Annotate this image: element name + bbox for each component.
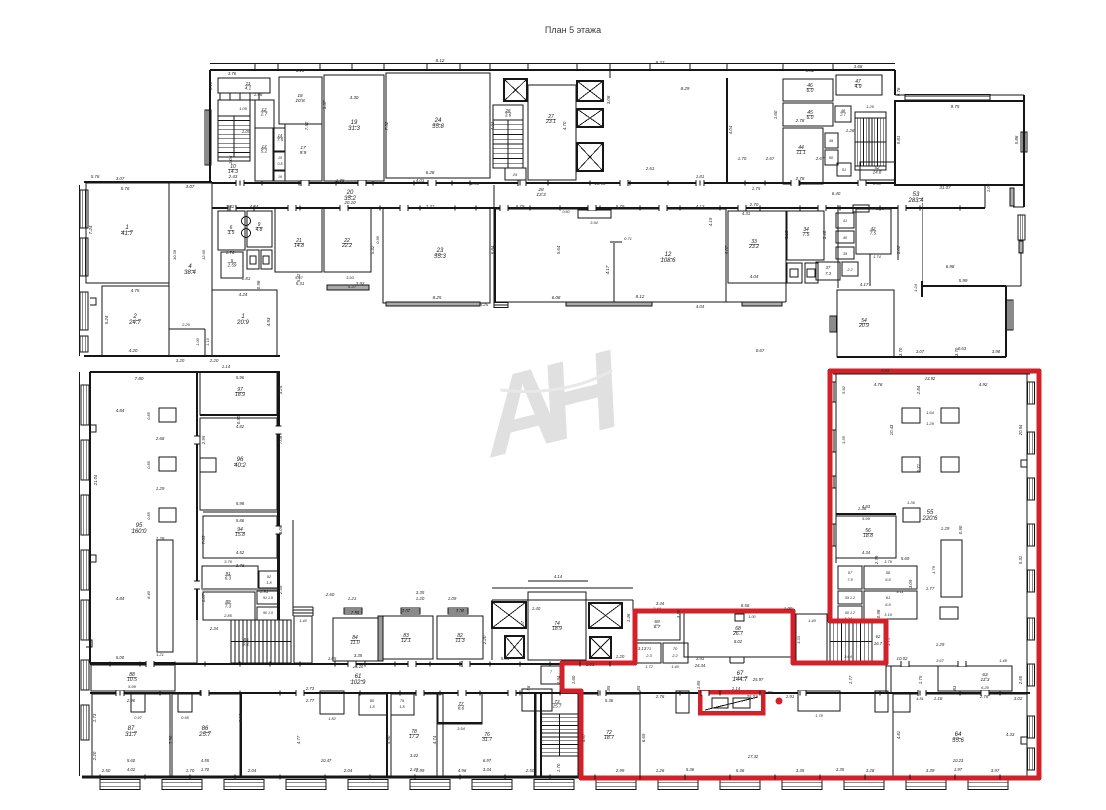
svg-text:1.10: 1.10: [208, 81, 213, 90]
svg-text:3.97: 3.97: [991, 768, 1000, 773]
svg-text:8.12: 8.12: [636, 294, 645, 299]
svg-text:10.98: 10.98: [595, 181, 607, 186]
svg-text:1.77: 1.77: [926, 586, 935, 591]
svg-text:2.20: 2.20: [209, 358, 219, 363]
svg-text:3.33: 3.33: [796, 635, 801, 644]
svg-text:9.9: 9.9: [300, 150, 307, 156]
svg-text:8.12: 8.12: [436, 58, 445, 63]
svg-text:8.40: 8.40: [146, 590, 151, 599]
svg-text:1.07: 1.07: [201, 593, 206, 602]
svg-text:0.90: 0.90: [236, 415, 241, 424]
svg-text:60 1.2: 60 1.2: [845, 611, 855, 615]
svg-text:2.50: 2.50: [525, 768, 535, 773]
svg-text:18.9: 18.9: [552, 626, 562, 632]
svg-text:1.76: 1.76: [226, 250, 235, 255]
svg-text:108.6: 108.6: [660, 258, 676, 264]
svg-text:1.26: 1.26: [656, 768, 665, 773]
svg-text:1.98: 1.98: [254, 92, 263, 97]
svg-text:4.04: 4.04: [696, 304, 705, 309]
svg-text:2.32: 2.32: [225, 204, 235, 209]
svg-text:5.36: 5.36: [736, 768, 745, 773]
svg-text:1.60: 1.60: [571, 675, 576, 684]
svg-text:0.99: 0.99: [376, 235, 380, 243]
svg-text:2.76: 2.76: [655, 694, 665, 699]
svg-text:3.39: 3.39: [926, 768, 935, 773]
svg-text:4.57: 4.57: [520, 620, 525, 629]
svg-text:0.98: 0.98: [876, 609, 881, 618]
svg-text:2.50: 2.50: [101, 768, 111, 773]
svg-text:25.97: 25.97: [752, 677, 764, 682]
svg-text:5.98: 5.98: [236, 501, 245, 506]
svg-text:1.24: 1.24: [913, 283, 918, 292]
svg-text:10.23: 10.23: [953, 758, 964, 763]
svg-text:4.91: 4.91: [490, 121, 495, 130]
svg-text:1.05: 1.05: [242, 129, 251, 134]
svg-text:0.8: 0.8: [278, 162, 283, 166]
svg-text:8.56: 8.56: [741, 603, 750, 608]
svg-text:6.08: 6.08: [552, 295, 561, 300]
svg-text:2.78: 2.78: [795, 118, 805, 123]
svg-text:3.13: 3.13: [638, 646, 647, 651]
svg-text:71: 71: [647, 646, 651, 651]
svg-text:1.79: 1.79: [931, 565, 936, 574]
svg-text:24.7: 24.7: [128, 320, 141, 326]
svg-text:1.29: 1.29: [156, 486, 165, 491]
svg-text:57: 57: [848, 570, 853, 575]
svg-text:3.76: 3.76: [224, 559, 233, 564]
svg-text:3.28: 3.28: [866, 768, 875, 773]
svg-text:3.35: 3.35: [841, 435, 846, 444]
svg-text:1.21: 1.21: [348, 596, 357, 601]
svg-text:13.3: 13.3: [536, 192, 546, 198]
svg-text:9.75: 9.75: [951, 104, 960, 109]
svg-text:7.5: 7.5: [277, 137, 283, 142]
svg-text:1.14: 1.14: [222, 364, 231, 369]
svg-text:1.26: 1.26: [846, 128, 855, 133]
svg-text:9.78: 9.78: [896, 87, 901, 96]
svg-text:1.65: 1.65: [328, 656, 337, 661]
svg-text:3.64: 3.64: [844, 654, 853, 659]
svg-text:5.90: 5.90: [386, 735, 391, 744]
svg-text:61: 61: [886, 595, 890, 600]
svg-text:18.8: 18.8: [863, 533, 873, 539]
svg-text:4.77: 4.77: [296, 735, 301, 744]
svg-text:5.99: 5.99: [862, 516, 871, 521]
svg-text:41: 41: [843, 219, 847, 223]
svg-text:4.17: 4.17: [860, 282, 869, 287]
svg-text:91 1.5: 91 1.5: [263, 596, 273, 600]
svg-text:1.05: 1.05: [239, 106, 248, 111]
svg-text:20.10: 20.10: [343, 200, 356, 205]
svg-text:5.2: 5.2: [261, 149, 268, 154]
svg-text:4.14: 4.14: [554, 574, 563, 579]
svg-text:4.11: 4.11: [896, 590, 903, 594]
svg-text:4.31: 4.31: [742, 211, 751, 216]
svg-text:6.84: 6.84: [490, 245, 495, 254]
svg-text:1.70: 1.70: [201, 767, 210, 772]
svg-text:5.36: 5.36: [605, 698, 614, 703]
svg-text:3.02: 3.02: [1014, 696, 1023, 701]
svg-text:1.21: 1.21: [156, 652, 164, 657]
svg-text:4.70: 4.70: [562, 121, 567, 130]
svg-text:2.43: 2.43: [228, 174, 238, 179]
svg-text:3.09: 3.09: [908, 579, 913, 588]
svg-text:2.04: 2.04: [343, 768, 353, 773]
svg-text:1.29: 1.29: [926, 421, 935, 426]
svg-text:4.1: 4.1: [245, 86, 252, 91]
svg-text:26.7: 26.7: [732, 631, 743, 637]
svg-text:1.85: 1.85: [696, 680, 701, 689]
svg-text:1.48: 1.48: [999, 658, 1008, 663]
svg-text:1.72: 1.72: [645, 665, 653, 669]
svg-text:1.94: 1.94: [556, 675, 561, 684]
svg-text:2.95: 2.95: [201, 435, 206, 445]
svg-text:3.82: 3.82: [806, 68, 815, 73]
svg-text:5.64: 5.64: [556, 245, 561, 254]
svg-text:4.02: 4.02: [127, 767, 136, 772]
svg-text:12.60: 12.60: [201, 249, 206, 260]
svg-text:5.86: 5.86: [1014, 135, 1019, 144]
svg-text:3.76: 3.76: [236, 563, 245, 568]
svg-text:31.3: 31.3: [348, 126, 360, 132]
svg-text:2.65: 2.65: [1018, 675, 1023, 685]
svg-text:0.60: 0.60: [563, 210, 570, 214]
svg-text:4.81: 4.81: [916, 697, 923, 701]
svg-text:1.81: 1.81: [242, 276, 251, 281]
svg-text:12.1: 12.1: [401, 638, 411, 644]
svg-text:3.98: 3.98: [992, 349, 1001, 354]
svg-text:3.07: 3.07: [186, 184, 195, 189]
svg-text:3.19: 3.19: [884, 613, 892, 617]
svg-text:6.0: 6.0: [807, 88, 814, 94]
svg-text:2.76: 2.76: [979, 694, 989, 699]
svg-text:5.69: 5.69: [901, 556, 910, 561]
svg-text:22.2: 22.2: [341, 243, 352, 249]
svg-text:3.07: 3.07: [916, 349, 925, 354]
svg-text:10.39: 10.39: [172, 249, 177, 260]
svg-text:10.02: 10.02: [897, 656, 909, 661]
svg-text:1.00: 1.00: [784, 606, 793, 611]
svg-text:1.00: 1.00: [196, 337, 200, 345]
svg-text:5.42: 5.42: [370, 245, 375, 254]
svg-text:16.7: 16.7: [874, 641, 883, 646]
svg-text:1.40: 1.40: [808, 618, 817, 623]
svg-text:40.2: 40.2: [234, 463, 246, 469]
svg-text:1.85: 1.85: [606, 685, 611, 694]
svg-text:5.24: 5.24: [104, 315, 109, 324]
svg-text:3.34: 3.34: [483, 767, 492, 772]
svg-text:5.92: 5.92: [841, 385, 846, 394]
svg-text:5.00: 5.00: [116, 655, 125, 660]
svg-text:23.2: 23.2: [748, 244, 759, 250]
svg-text:31.7: 31.7: [125, 732, 137, 738]
svg-text:8.6: 8.6: [458, 706, 465, 711]
svg-text:3.02: 3.02: [896, 245, 901, 254]
svg-text:55.3: 55.3: [434, 254, 446, 260]
svg-text:2.61: 2.61: [645, 166, 655, 171]
svg-text:4.24: 4.24: [250, 204, 259, 209]
svg-text:4.84: 4.84: [116, 408, 125, 413]
svg-text:6.69: 6.69: [641, 733, 646, 742]
svg-text:3.6: 3.6: [505, 113, 512, 118]
svg-text:8.02: 8.02: [734, 639, 743, 644]
svg-text:1.75: 1.75: [752, 186, 761, 191]
svg-text:1.18: 1.18: [934, 696, 943, 701]
svg-text:1.8: 1.8: [369, 705, 375, 709]
svg-text:15.7: 15.7: [553, 704, 562, 709]
svg-text:4.67: 4.67: [581, 733, 586, 742]
svg-text:4.19: 4.19: [708, 217, 713, 226]
svg-text:31.07: 31.07: [939, 185, 951, 190]
svg-text:2.99: 2.99: [615, 768, 625, 773]
svg-text:3.08: 3.08: [606, 95, 611, 104]
svg-text:3.79: 3.79: [884, 559, 893, 564]
svg-text:7.3: 7.3: [225, 604, 232, 609]
svg-text:2.79: 2.79: [874, 555, 879, 565]
svg-text:3.93: 3.93: [346, 275, 355, 280]
svg-text:3.44: 3.44: [656, 601, 665, 606]
svg-text:4.17: 4.17: [605, 265, 610, 274]
svg-text:1.20: 1.20: [616, 654, 625, 659]
svg-text:18.7: 18.7: [604, 735, 614, 741]
svg-text:5.31: 5.31: [1018, 556, 1023, 564]
svg-text:1.36: 1.36: [858, 506, 867, 511]
svg-text:4.13: 4.13: [696, 204, 705, 209]
svg-text:4.04: 4.04: [728, 125, 733, 134]
svg-text:5.96: 5.96: [236, 375, 245, 380]
svg-text:5.90: 5.90: [168, 735, 173, 744]
svg-text:1.70: 1.70: [738, 156, 747, 161]
svg-text:5.60: 5.60: [127, 758, 136, 763]
svg-text:14.8: 14.8: [294, 243, 304, 249]
svg-text:План 5 этажа: План 5 этажа: [545, 25, 601, 35]
svg-text:4.34: 4.34: [862, 550, 871, 555]
svg-text:4.52: 4.52: [236, 550, 245, 555]
svg-text:3.37: 3.37: [322, 100, 327, 109]
svg-text:0.85: 0.85: [147, 511, 151, 519]
svg-text:51: 51: [842, 168, 846, 172]
svg-text:0.85: 0.85: [147, 460, 151, 468]
svg-text:2.20: 2.20: [181, 322, 191, 327]
svg-text:6.20: 6.20: [981, 685, 990, 690]
svg-text:3.16: 3.16: [238, 713, 243, 722]
svg-text:6.79: 6.79: [516, 204, 525, 209]
svg-text:3.91: 3.91: [696, 656, 705, 661]
svg-text:4.33: 4.33: [1006, 732, 1015, 737]
svg-text:1.40: 1.40: [532, 606, 541, 611]
svg-text:0.63: 0.63: [958, 346, 967, 351]
svg-text:6.40: 6.40: [832, 191, 841, 196]
svg-text:10.47: 10.47: [321, 758, 332, 763]
svg-text:3.50: 3.50: [676, 609, 681, 618]
svg-text:7.65: 7.65: [201, 535, 206, 544]
svg-text:6.28: 6.28: [426, 170, 435, 175]
svg-text:2.3: 2.3: [645, 653, 652, 658]
svg-text:2.2: 2.2: [671, 653, 678, 658]
svg-text:6.7: 6.7: [654, 624, 661, 630]
svg-text:2.68: 2.68: [155, 436, 165, 441]
svg-text:3.35: 3.35: [354, 653, 363, 658]
svg-text:13.92: 13.92: [925, 376, 936, 381]
svg-text:11.0: 11.0: [350, 640, 360, 646]
svg-text:4.20: 4.20: [129, 348, 138, 353]
svg-text:4.92: 4.92: [979, 382, 988, 387]
svg-text:1.08: 1.08: [986, 183, 991, 192]
svg-text:1.20: 1.20: [416, 596, 425, 601]
svg-text:8.25: 8.25: [480, 302, 489, 307]
svg-text:6.97: 6.97: [483, 758, 492, 763]
svg-text:1.81: 1.81: [696, 174, 705, 179]
svg-text:1.10: 1.10: [206, 337, 210, 345]
svg-text:1.00: 1.00: [749, 615, 756, 619]
svg-text:5.76: 5.76: [91, 174, 100, 179]
svg-text:3.24: 3.24: [278, 385, 283, 394]
svg-text:6.6: 6.6: [885, 602, 891, 607]
svg-text:4.76: 4.76: [874, 382, 883, 387]
svg-text:3.06: 3.06: [278, 525, 283, 534]
svg-text:1.97: 1.97: [954, 767, 963, 772]
svg-text:17.32: 17.32: [748, 754, 759, 759]
svg-text:0.90: 0.90: [958, 525, 963, 534]
svg-text:2.59: 2.59: [227, 263, 237, 268]
svg-text:4.93: 4.93: [266, 317, 271, 326]
svg-text:3.07: 3.07: [116, 176, 125, 181]
svg-text:4.83: 4.83: [881, 368, 890, 373]
svg-text:4.74: 4.74: [432, 735, 437, 744]
svg-text:3.67: 3.67: [936, 658, 945, 663]
svg-text:2.99: 2.99: [415, 768, 425, 773]
svg-text:6.87: 6.87: [724, 245, 729, 254]
svg-text:25.7: 25.7: [198, 732, 211, 738]
svg-text:2.56: 2.56: [526, 685, 531, 695]
svg-text:5.76: 5.76: [121, 186, 130, 191]
svg-text:5.99: 5.99: [128, 684, 137, 689]
svg-text:3.35: 3.35: [836, 767, 845, 772]
svg-text:3.70: 3.70: [954, 347, 959, 356]
svg-text:23.1: 23.1: [545, 119, 556, 125]
svg-text:2.58: 2.58: [872, 181, 882, 186]
svg-text:2.7: 2.7: [839, 112, 846, 117]
svg-text:2.7: 2.7: [260, 112, 268, 117]
svg-text:1.38: 1.38: [336, 178, 345, 183]
svg-text:14.8: 14.8: [873, 170, 882, 175]
svg-text:5.81: 5.81: [896, 135, 901, 144]
svg-text:24.34: 24.34: [694, 663, 706, 668]
svg-text:1.74: 1.74: [873, 255, 880, 259]
svg-text:1.8: 1.8: [399, 705, 405, 709]
svg-text:0.67: 0.67: [756, 348, 765, 353]
svg-text:5.79: 5.79: [616, 204, 625, 209]
svg-text:1.64: 1.64: [926, 410, 935, 415]
svg-text:4.55: 4.55: [201, 758, 210, 763]
svg-text:6.0: 6.0: [807, 115, 814, 121]
svg-text:1.40: 1.40: [671, 665, 679, 669]
svg-text:3.48: 3.48: [822, 230, 827, 239]
svg-text:6.3: 6.3: [225, 576, 232, 581]
svg-text:5.36: 5.36: [686, 767, 695, 772]
svg-text:5.31: 5.31: [296, 281, 305, 286]
svg-text:3.20: 3.20: [176, 358, 185, 363]
svg-text:2.20: 2.20: [92, 751, 97, 761]
svg-text:2.60: 2.60: [325, 592, 335, 597]
svg-text:0.65: 0.65: [181, 716, 189, 720]
svg-text:20.94: 20.94: [1018, 424, 1023, 436]
svg-text:4.30: 4.30: [350, 95, 359, 100]
svg-text:25.03: 25.03: [746, 694, 759, 699]
svg-text:1.8: 1.8: [266, 581, 272, 585]
svg-text:0.97: 0.97: [134, 716, 142, 720]
svg-text:7.52: 7.52: [384, 121, 389, 130]
svg-text:41.7: 41.7: [121, 231, 133, 237]
svg-text:1.78: 1.78: [815, 714, 823, 718]
svg-text:4.9: 4.9: [855, 84, 862, 90]
svg-text:1.03: 1.03: [586, 662, 595, 667]
svg-text:1.70: 1.70: [556, 763, 561, 772]
svg-text:2.84: 2.84: [916, 385, 921, 395]
svg-text:1.28: 1.28: [156, 536, 165, 541]
svg-text:5.99: 5.99: [959, 278, 968, 283]
svg-text:1.29: 1.29: [941, 526, 950, 531]
svg-text:8.25: 8.25: [433, 295, 442, 300]
svg-text:2.34: 2.34: [209, 626, 219, 631]
svg-text:7.5: 7.5: [847, 577, 853, 582]
svg-text:37: 37: [826, 265, 831, 270]
svg-text:7.08: 7.08: [278, 435, 283, 444]
svg-text:3.68: 3.68: [854, 64, 863, 69]
svg-text:90 1.5: 90 1.5: [263, 611, 273, 615]
svg-text:10.43: 10.43: [889, 424, 894, 435]
svg-text:59 1.2: 59 1.2: [845, 596, 855, 600]
svg-text:11.1: 11.1: [796, 150, 806, 156]
svg-text:1.70: 1.70: [186, 768, 195, 773]
svg-text:55.8: 55.8: [432, 124, 444, 130]
svg-text:4.8: 4.8: [256, 227, 263, 233]
svg-text:20.9: 20.9: [236, 320, 249, 326]
svg-text:3.42: 3.42: [410, 753, 419, 758]
svg-text:3.35: 3.35: [416, 590, 425, 595]
svg-text:2.73: 2.73: [305, 686, 315, 691]
svg-text:4.24: 4.24: [239, 292, 248, 297]
svg-text:2.78: 2.78: [795, 176, 805, 181]
svg-text:10.5: 10.5: [127, 677, 137, 683]
svg-text:2.32: 2.32: [425, 204, 435, 209]
svg-text:102.9: 102.9: [350, 680, 366, 686]
svg-text:4.81: 4.81: [896, 731, 901, 739]
svg-text:160.0: 160.0: [131, 529, 147, 535]
svg-text:5.15: 5.15: [784, 230, 789, 239]
svg-text:7.24: 7.24: [88, 225, 93, 234]
svg-text:3.93: 3.93: [356, 281, 365, 286]
svg-text:70: 70: [673, 646, 678, 651]
svg-text:20.9: 20.9: [858, 323, 869, 329]
svg-text:3.54: 3.54: [457, 726, 466, 731]
svg-text:283.4: 283.4: [907, 198, 924, 204]
svg-text:1.73: 1.73: [92, 713, 97, 722]
svg-text:1.14: 1.14: [732, 686, 741, 691]
svg-text:0.98: 0.98: [256, 280, 261, 289]
svg-text:2.67: 2.67: [815, 156, 825, 161]
svg-text:15: 15: [278, 156, 282, 160]
svg-text:5.64: 5.64: [501, 656, 510, 661]
svg-text:144.7: 144.7: [732, 677, 748, 683]
svg-text:1.75: 1.75: [918, 675, 923, 684]
svg-text:18.9: 18.9: [235, 392, 245, 398]
svg-text:4.84: 4.84: [116, 596, 125, 601]
svg-text:1.77: 1.77: [848, 675, 853, 684]
svg-text:2.43: 2.43: [470, 181, 480, 186]
svg-text:17.2: 17.2: [409, 734, 419, 740]
svg-text:1.36: 1.36: [907, 500, 916, 505]
